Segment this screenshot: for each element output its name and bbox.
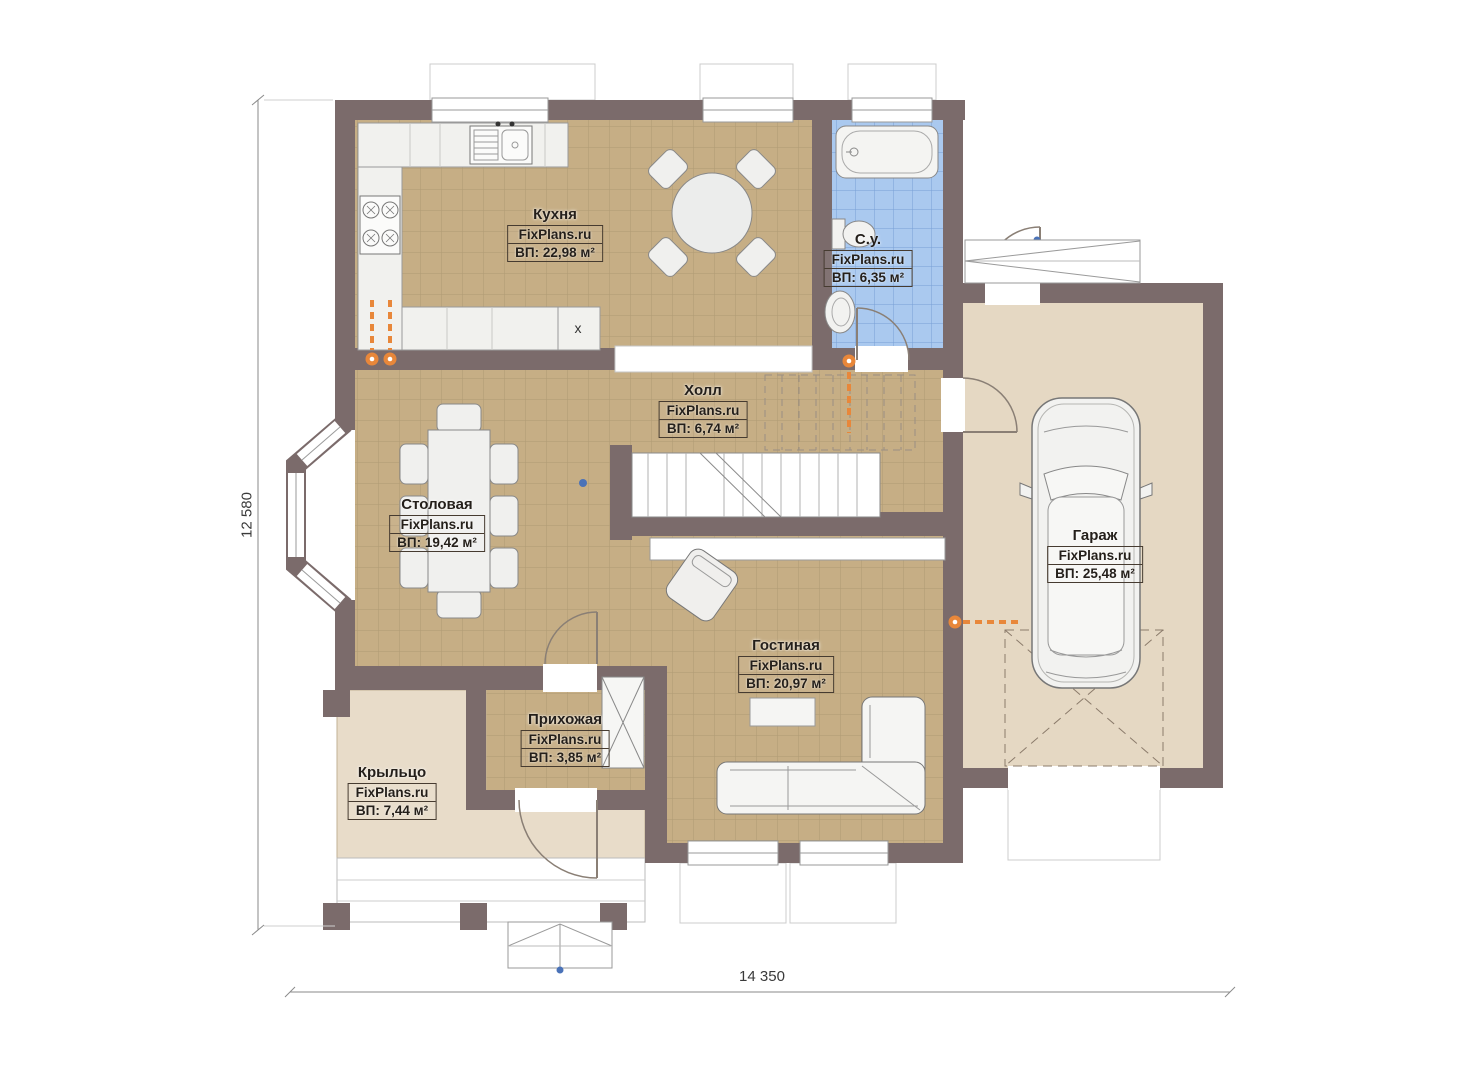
hinge-dot <box>579 479 587 487</box>
chair <box>437 404 481 432</box>
room-area: ВП: 19,42 м² <box>390 534 484 551</box>
kitchen-cabinet-mark: x <box>575 320 582 336</box>
room-label-bathroom: С.у. FixPlans.ru ВП: 6,35 м² <box>824 231 913 287</box>
wall-bathroom-south <box>908 348 963 370</box>
exterior-casing <box>430 64 595 100</box>
chair <box>490 548 518 588</box>
coffee-table <box>750 698 815 726</box>
chair <box>400 548 428 588</box>
wall-entry-east <box>645 666 667 843</box>
floor-plan-page: Кухня FixPlans.ru ВП: 22,98 м² С.у. FixP… <box>0 0 1474 1080</box>
room-area: ВП: 6,74 м² <box>660 420 747 437</box>
dimension-height: 12 580 <box>239 492 256 538</box>
window-recess <box>680 863 786 923</box>
chair <box>490 444 518 484</box>
window-recess <box>790 863 896 923</box>
porch-column <box>460 903 487 930</box>
floor-plan-drawing <box>0 0 1474 1080</box>
wall-garage-east <box>1203 283 1223 788</box>
room-label-dining: Столовая FixPlans.ru ВП: 19,42 м² <box>389 496 485 552</box>
watermark: FixPlans.ru <box>508 226 602 244</box>
wall-garage-north <box>963 283 985 303</box>
wall-garage-north <box>1040 283 1223 303</box>
room-info-box: FixPlans.ru ВП: 7,44 м² <box>348 783 437 820</box>
wall-entry-south <box>486 790 515 810</box>
room-info-box: FixPlans.ru ВП: 6,35 м² <box>824 250 913 287</box>
watermark: FixPlans.ru <box>739 657 833 675</box>
room-name: С.у. <box>824 231 913 248</box>
kitchen-counter-bottom <box>402 307 558 350</box>
door-gap-garage-hall <box>941 378 965 432</box>
room-label-entry: Прихожая FixPlans.ru ВП: 3,85 м² <box>521 711 610 767</box>
watermark: FixPlans.ru <box>825 251 912 269</box>
bay-windows <box>296 427 340 603</box>
door-gap-bathroom <box>855 346 908 372</box>
room-name: Кухня <box>507 206 603 223</box>
bathtub <box>836 126 938 178</box>
room-info-box: FixPlans.ru ВП: 20,97 м² <box>738 656 834 693</box>
door-gap-garage-entry <box>985 281 1040 305</box>
door-gap-entry-living <box>543 664 597 692</box>
room-label-garage: Гараж FixPlans.ru ВП: 25,48 м² <box>1047 527 1143 583</box>
room-area: ВП: 20,97 м² <box>739 675 833 692</box>
room-name: Крыльцо <box>348 764 437 781</box>
room-info-box: FixPlans.ru ВП: 22,98 м² <box>507 225 603 262</box>
room-area: ВП: 6,35 м² <box>825 269 912 286</box>
kitchen-counter-top <box>358 123 568 167</box>
exterior-casing <box>700 64 793 100</box>
door-gap-front <box>515 788 597 812</box>
wall-porch-north <box>335 666 486 690</box>
watermark: FixPlans.ru <box>349 784 436 802</box>
room-name: Гараж <box>1047 527 1143 544</box>
room-area: ВП: 22,98 м² <box>508 244 602 261</box>
kitchen-sink <box>470 122 532 165</box>
chair <box>490 496 518 536</box>
room-name: Столовая <box>389 496 485 513</box>
watermark: FixPlans.ru <box>660 402 747 420</box>
room-info-box: FixPlans.ru ВП: 25,48 м² <box>1047 546 1143 583</box>
wall-entry-west <box>466 690 486 810</box>
room-info-box: FixPlans.ru ВП: 19,42 м² <box>389 515 485 552</box>
room-name: Прихожая <box>521 711 610 728</box>
hinge-dot <box>557 967 564 974</box>
room-area: ВП: 3,85 м² <box>522 749 609 766</box>
exterior-casing <box>848 64 936 100</box>
room-info-box: FixPlans.ru ВП: 3,85 м² <box>521 730 610 767</box>
garage-door-gap <box>1008 766 1160 790</box>
porch-column <box>323 690 350 717</box>
room-label-hall: Холл FixPlans.ru ВП: 6,74 м² <box>659 382 748 438</box>
wall-entry-north <box>486 666 543 690</box>
room-label-kitchen: Кухня FixPlans.ru ВП: 22,98 м² <box>507 206 603 262</box>
porch-steps <box>337 858 645 922</box>
wall-left-upper <box>335 100 355 430</box>
room-name: Холл <box>659 382 748 399</box>
garage-apron <box>1008 788 1160 860</box>
chair <box>400 444 428 484</box>
wall-garage-south <box>1160 768 1223 788</box>
round-table <box>672 173 752 253</box>
room-label-porch: Крыльцо FixPlans.ru ВП: 7,44 м² <box>348 764 437 820</box>
wall-right <box>943 100 963 863</box>
wall-garage-south <box>963 768 1008 788</box>
dimension-width: 14 350 <box>739 968 785 985</box>
watermark: FixPlans.ru <box>390 516 484 534</box>
pedestal-sink <box>825 291 855 333</box>
porch-entrance-steps <box>508 922 612 974</box>
room-label-living: Гостиная FixPlans.ru ВП: 20,97 м² <box>738 637 834 693</box>
room-area: ВП: 7,44 м² <box>349 802 436 819</box>
wall-entry-south <box>597 790 645 810</box>
kitchen-counter-left <box>358 167 402 350</box>
chair <box>437 590 481 618</box>
opening-kitchen-hall <box>615 346 812 372</box>
watermark: FixPlans.ru <box>522 731 609 749</box>
room-info-box: FixPlans.ru ВП: 6,74 м² <box>659 401 748 438</box>
watermark: FixPlans.ru <box>1048 547 1142 565</box>
room-area: ВП: 25,48 м² <box>1048 565 1142 582</box>
room-name: Гостиная <box>738 637 834 654</box>
kitchen-stove <box>360 196 400 254</box>
stairs-lower-flight <box>632 453 880 517</box>
garage-entry-steps <box>965 240 1140 283</box>
